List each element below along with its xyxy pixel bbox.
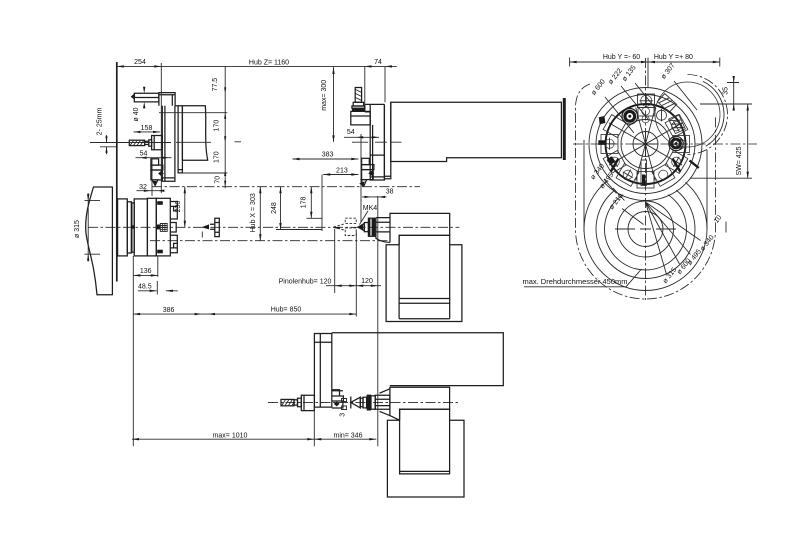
svg-text:Hub X = 303: Hub X = 303	[250, 193, 257, 232]
svg-text:383: 383	[322, 152, 334, 159]
svg-text:MK4: MK4	[363, 205, 378, 212]
svg-text:Hub Y =- 60: Hub Y =- 60	[603, 54, 640, 61]
svg-text:max= 1010: max= 1010	[213, 432, 248, 439]
svg-text:248: 248	[271, 202, 278, 214]
svg-text:213: 213	[336, 168, 348, 175]
svg-text:120: 120	[361, 278, 373, 285]
svg-text:74: 74	[374, 59, 382, 66]
svg-text:386: 386	[163, 307, 175, 314]
svg-text:136: 136	[140, 268, 152, 275]
svg-text:77.5: 77.5	[212, 78, 219, 92]
svg-text:min= 346: min= 346	[334, 432, 363, 439]
svg-text:32: 32	[139, 184, 147, 191]
svg-text:ø 40: ø 40	[133, 107, 140, 121]
svg-text:35: 35	[723, 87, 730, 95]
svg-text:170: 170	[214, 151, 221, 163]
svg-text:max= 300: max= 300	[321, 80, 328, 111]
svg-text:Pinolenhub= 120: Pinolenhub= 120	[279, 278, 332, 285]
svg-text:230: 230	[175, 201, 182, 213]
svg-text:70: 70	[214, 176, 221, 184]
svg-text:158: 158	[141, 125, 153, 132]
svg-text:38: 38	[386, 189, 394, 196]
svg-text:Hub Y =+ 80: Hub Y =+ 80	[654, 54, 693, 61]
svg-text:3: 3	[340, 413, 347, 417]
svg-text:Hub= 850: Hub= 850	[271, 306, 302, 313]
svg-text:170: 170	[214, 120, 221, 132]
svg-text:2- 25mm: 2- 25mm	[97, 108, 104, 136]
svg-text:54: 54	[347, 129, 355, 136]
svg-text:178: 178	[301, 196, 308, 208]
svg-text:ø 315: ø 315	[74, 220, 81, 238]
svg-text:SW= 425: SW= 425	[736, 146, 743, 175]
svg-text:48.5: 48.5	[138, 284, 152, 291]
svg-text:254: 254	[134, 59, 146, 66]
svg-text:Hub Z= 1160: Hub Z= 1160	[249, 60, 289, 67]
svg-text:max. Drehdurchmesser 450mm: max. Drehdurchmesser 450mm	[522, 277, 627, 286]
svg-text:54: 54	[140, 150, 148, 157]
